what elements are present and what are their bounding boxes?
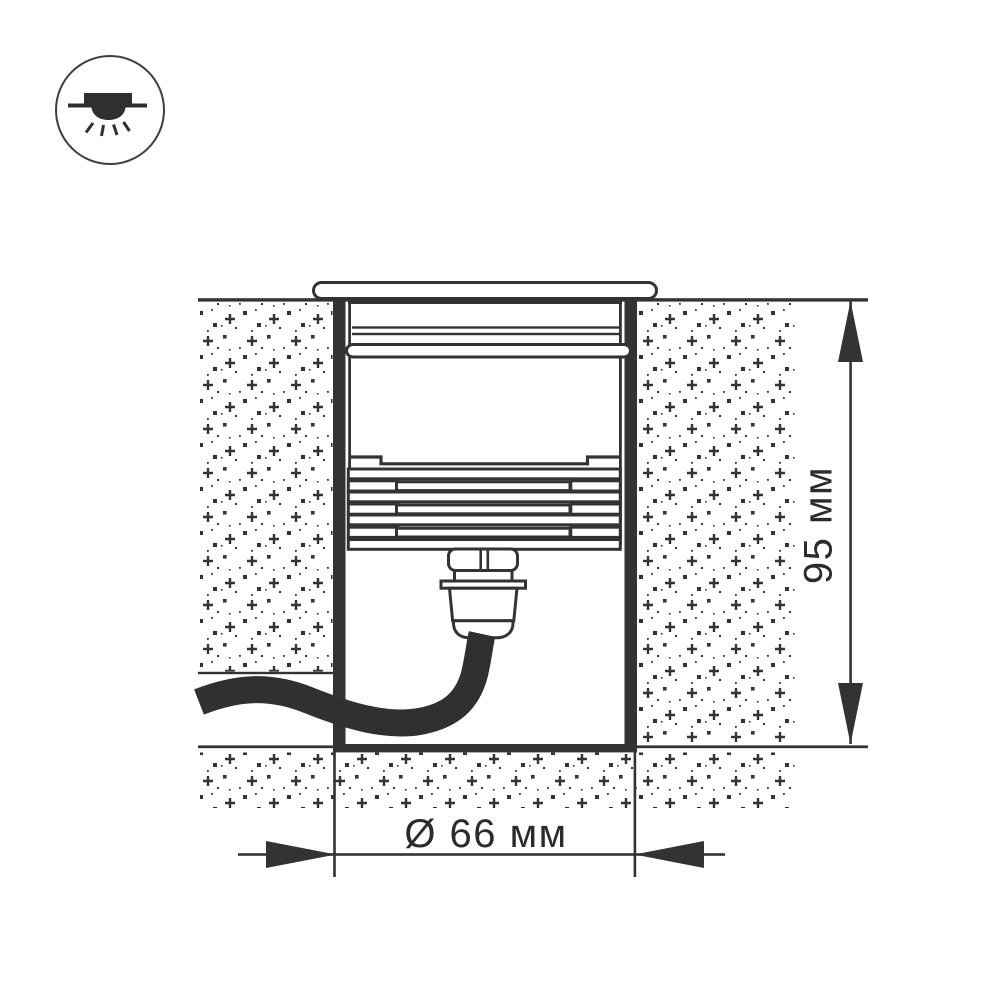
cable-gland bbox=[441, 549, 526, 638]
ground-left bbox=[200, 303, 333, 672]
led-module-plate bbox=[350, 457, 620, 464]
pit-bottom bbox=[333, 744, 637, 752]
diameter-arrow-right bbox=[635, 841, 705, 868]
height-dimension: 95 мм bbox=[797, 301, 863, 744]
gland-body bbox=[450, 588, 518, 621]
diameter-dimension-label: Ø 66 мм bbox=[404, 812, 567, 856]
body-top-plate bbox=[348, 299, 622, 304]
gland-neck bbox=[455, 571, 513, 582]
diameter-dimension: Ø 66 мм bbox=[238, 812, 725, 868]
glass-pane bbox=[352, 326, 619, 335]
heatsink-fins bbox=[348, 457, 620, 549]
pit-wall-left bbox=[333, 299, 346, 751]
pit-wall-right bbox=[625, 299, 638, 751]
gland-nut bbox=[449, 549, 518, 571]
height-arrow-up bbox=[838, 301, 863, 362]
fixture-flange bbox=[314, 283, 657, 299]
icon-ceiling-line bbox=[68, 104, 147, 108]
gasket-ring bbox=[347, 345, 631, 358]
height-arrow-down bbox=[838, 683, 863, 744]
ground-right bbox=[638, 303, 795, 743]
recessed-light-icon bbox=[56, 56, 164, 164]
height-dimension-label: 95 мм bbox=[797, 466, 841, 584]
installation-diagram: 95 мм Ø 66 мм bbox=[0, 0, 1000, 1000]
page: 95 мм Ø 66 мм bbox=[0, 0, 1000, 1000]
diameter-arrow-left bbox=[266, 841, 336, 868]
height-dimension-line bbox=[849, 301, 852, 744]
ground-below bbox=[200, 753, 795, 809]
ground-left-bottom-line bbox=[198, 672, 334, 674]
